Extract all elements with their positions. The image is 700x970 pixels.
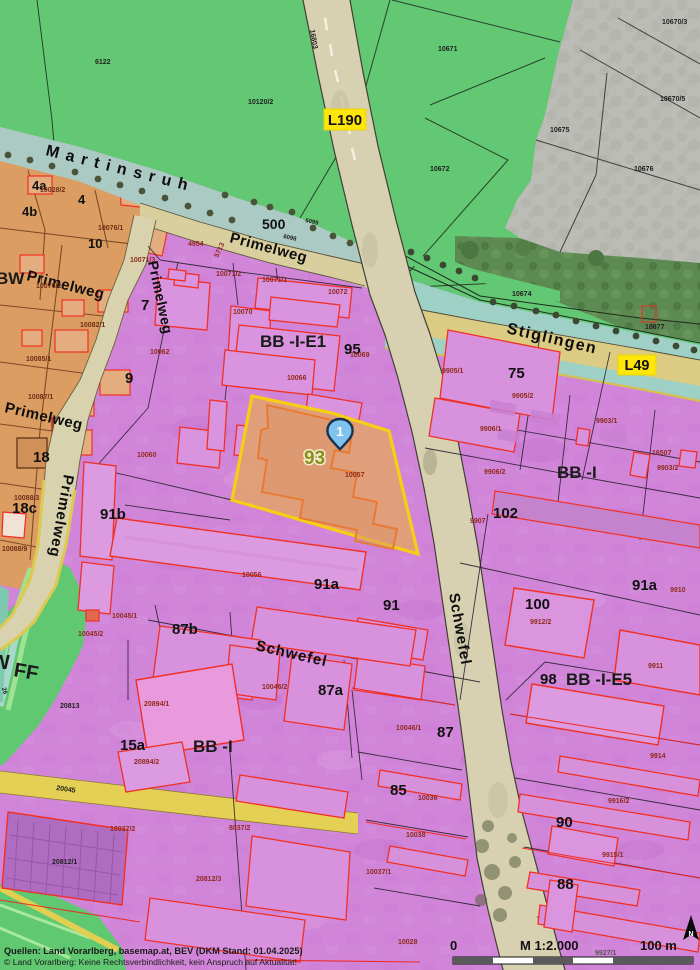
svg-text:BB -I-E5: BB -I-E5 — [566, 670, 632, 689]
svg-text:0: 0 — [450, 938, 457, 953]
svg-text:102: 102 — [493, 505, 518, 522]
svg-text:10670/5: 10670/5 — [660, 96, 685, 103]
svg-text:4b: 4b — [22, 204, 37, 219]
svg-text:10036: 10036 — [418, 795, 438, 802]
svg-text:10671: 10671 — [438, 46, 458, 53]
svg-text:10046/1: 10046/1 — [396, 725, 421, 732]
svg-text:93: 93 — [304, 448, 325, 469]
svg-text:10076/2: 10076/2 — [36, 283, 61, 290]
svg-text:9910: 9910 — [670, 587, 686, 594]
svg-text:91: 91 — [383, 597, 400, 614]
svg-text:10076/1: 10076/1 — [98, 225, 123, 232]
svg-text:L49: L49 — [625, 358, 650, 374]
svg-text:10674: 10674 — [512, 291, 532, 298]
svg-text:© Land Vorarlberg: Keine Recht: © Land Vorarlberg: Keine Rechtsverbindli… — [4, 957, 297, 967]
svg-text:9906/1: 9906/1 — [480, 426, 502, 433]
svg-text:BB -I-E1: BB -I-E1 — [260, 332, 326, 351]
svg-text:FF: FF — [12, 659, 40, 685]
svg-text:10088/9: 10088/9 — [2, 546, 27, 553]
svg-text:4: 4 — [78, 192, 86, 207]
svg-text:10087/1: 10087/1 — [28, 394, 53, 401]
svg-text:BW: BW — [0, 269, 25, 288]
svg-text:10037/2: 10037/2 — [110, 826, 135, 833]
svg-text:6122: 6122 — [95, 59, 111, 66]
svg-text:20894/2: 20894/2 — [134, 759, 159, 766]
svg-text:9912/2: 9912/2 — [530, 619, 552, 626]
svg-text:85: 85 — [390, 782, 407, 799]
svg-text:18c: 18c — [12, 500, 37, 517]
svg-text:10046/2: 10046/2 — [262, 684, 287, 691]
svg-text:10082/1: 10082/1 — [80, 322, 105, 329]
svg-text:9915/1: 9915/1 — [602, 852, 624, 859]
svg-text:10062: 10062 — [150, 349, 170, 356]
svg-text:10071/3: 10071/3 — [130, 257, 155, 264]
svg-text:L190: L190 — [328, 112, 362, 129]
svg-text:90: 90 — [556, 814, 573, 831]
svg-text:500: 500 — [262, 216, 286, 232]
svg-text:9: 9 — [125, 370, 133, 387]
svg-text:Quellen: Land Vorarlberg, base: Quellen: Land Vorarlberg, basemap.at, BE… — [4, 946, 303, 956]
svg-text:M 1:2.000: M 1:2.000 — [520, 938, 579, 953]
svg-text:8037/2: 8037/2 — [229, 825, 251, 832]
svg-text:9905/2: 9905/2 — [512, 393, 534, 400]
svg-text:10056: 10056 — [242, 572, 262, 579]
svg-text:9914: 9914 — [650, 753, 666, 760]
svg-text:9916/2: 9916/2 — [608, 798, 630, 805]
svg-text:10085/1: 10085/1 — [26, 356, 51, 363]
svg-text:10038: 10038 — [406, 832, 426, 839]
svg-text:10070: 10070 — [233, 309, 253, 316]
svg-text:16507: 16507 — [652, 450, 672, 457]
svg-text:10071/1: 10071/1 — [262, 277, 287, 284]
svg-text:9907: 9907 — [470, 518, 486, 525]
svg-text:10: 10 — [88, 236, 102, 251]
svg-text:87a: 87a — [318, 682, 344, 699]
svg-text:20812/3: 20812/3 — [196, 876, 221, 883]
svg-text:9906/2: 9906/2 — [484, 469, 506, 476]
svg-text:91b: 91b — [100, 506, 126, 523]
svg-text:10672: 10672 — [430, 166, 450, 173]
svg-text:10045/1: 10045/1 — [112, 613, 137, 620]
svg-text:BB -I: BB -I — [193, 737, 233, 756]
svg-text:10028: 10028 — [398, 939, 418, 946]
svg-text:9911: 9911 — [648, 663, 663, 670]
svg-text:7: 7 — [141, 297, 149, 314]
svg-text:10069: 10069 — [350, 352, 370, 359]
svg-text:91a: 91a — [632, 577, 658, 594]
svg-text:100: 100 — [525, 596, 550, 613]
svg-text:9905/1: 9905/1 — [442, 368, 464, 375]
svg-text:10066: 10066 — [287, 375, 307, 382]
svg-text:15a: 15a — [120, 737, 146, 754]
svg-text:9903/2: 9903/2 — [657, 465, 679, 472]
svg-text:100 m: 100 m — [640, 938, 677, 953]
svg-text:18: 18 — [33, 449, 50, 466]
svg-text:10045/2: 10045/2 — [78, 631, 103, 638]
svg-text:98: 98 — [540, 671, 557, 688]
svg-text:20813: 20813 — [60, 703, 80, 710]
svg-text:10675: 10675 — [550, 127, 570, 134]
svg-text:88: 88 — [557, 876, 574, 893]
svg-text:4954: 4954 — [188, 241, 204, 248]
svg-text:9903/1: 9903/1 — [596, 418, 618, 425]
svg-text:10088/3: 10088/3 — [14, 495, 39, 502]
svg-text:10120/2: 10120/2 — [248, 99, 273, 106]
svg-text:91a: 91a — [314, 576, 340, 593]
svg-text:BB -I: BB -I — [557, 463, 597, 482]
svg-text:10071/2: 10071/2 — [216, 271, 241, 278]
svg-text:87b: 87b — [172, 621, 198, 638]
svg-text:20812/1: 20812/1 — [52, 859, 77, 866]
svg-text:10057: 10057 — [345, 472, 365, 479]
svg-text:W: W — [0, 652, 10, 674]
svg-text:10670/3: 10670/3 — [662, 19, 687, 26]
svg-text:9927/1: 9927/1 — [595, 950, 617, 957]
svg-text:10037/1: 10037/1 — [366, 869, 391, 876]
svg-text:1: 1 — [336, 424, 343, 439]
svg-text:10677: 10677 — [645, 324, 665, 331]
svg-text:75: 75 — [508, 365, 525, 382]
svg-text:10676: 10676 — [634, 166, 654, 173]
svg-text:20894/1: 20894/1 — [144, 701, 169, 708]
svg-text:10060: 10060 — [137, 452, 157, 459]
svg-text:10072: 10072 — [328, 289, 348, 296]
svg-text:N: N — [688, 931, 693, 938]
svg-text:10028/2: 10028/2 — [40, 187, 65, 194]
svg-text:87: 87 — [437, 724, 454, 741]
